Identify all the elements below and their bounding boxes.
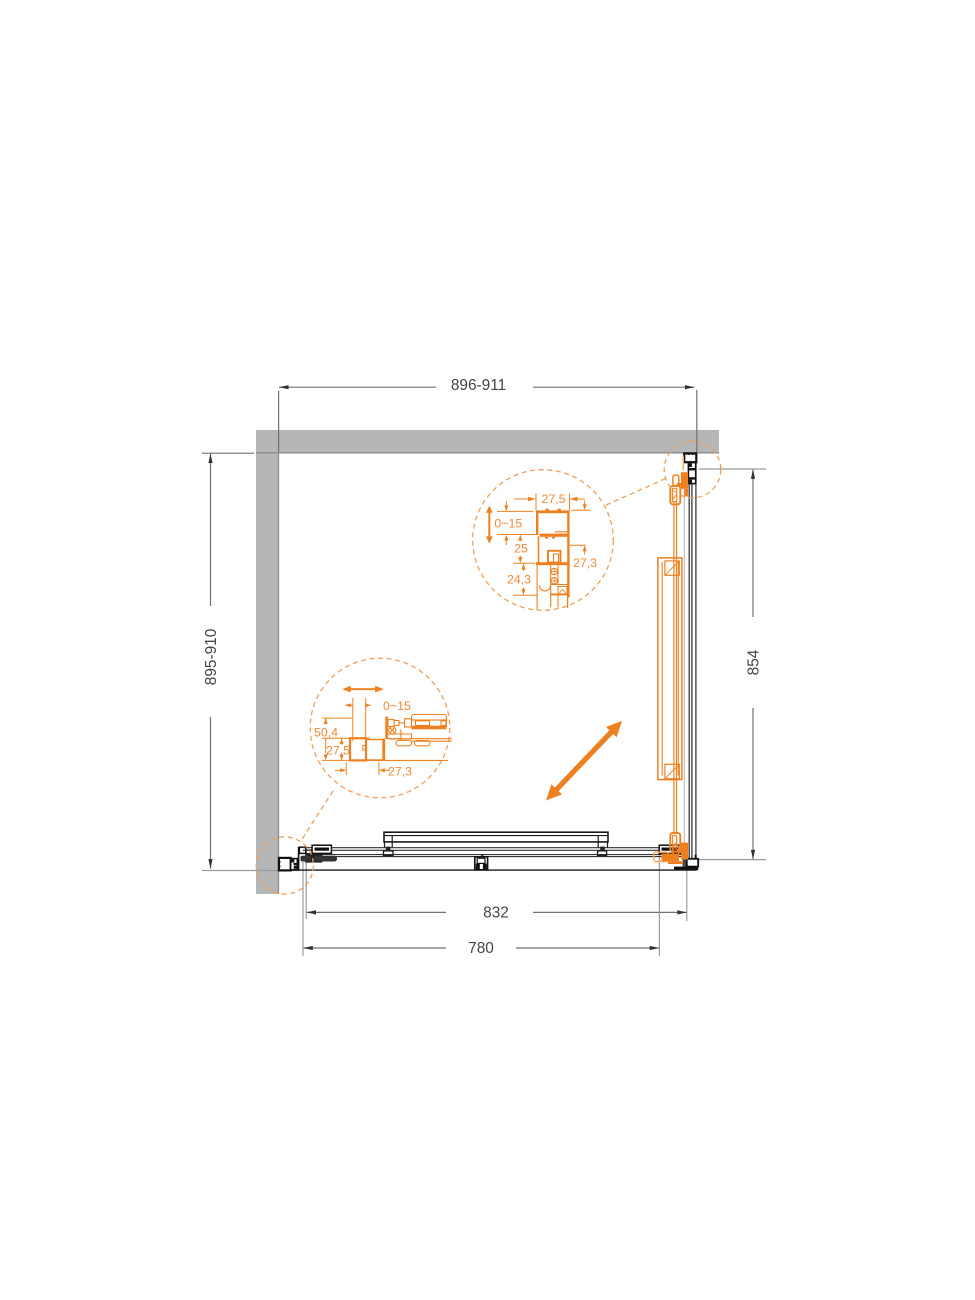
- svg-text:780: 780: [468, 940, 494, 957]
- svg-text:27,5: 27,5: [541, 492, 565, 506]
- svg-text:854: 854: [746, 649, 763, 675]
- svg-text:24,3: 24,3: [507, 572, 531, 586]
- svg-text:895-910: 895-910: [203, 629, 220, 685]
- svg-text:896-911: 896-911: [451, 377, 506, 394]
- svg-text:27,3: 27,3: [573, 556, 597, 570]
- svg-text:0~15: 0~15: [383, 699, 411, 713]
- svg-text:27,3: 27,3: [388, 764, 412, 778]
- svg-text:50,4: 50,4: [314, 726, 338, 740]
- svg-text:27,5: 27,5: [326, 743, 350, 757]
- svg-text:25: 25: [514, 541, 528, 555]
- svg-text:832: 832: [483, 905, 509, 922]
- svg-text:0~15: 0~15: [494, 516, 522, 530]
